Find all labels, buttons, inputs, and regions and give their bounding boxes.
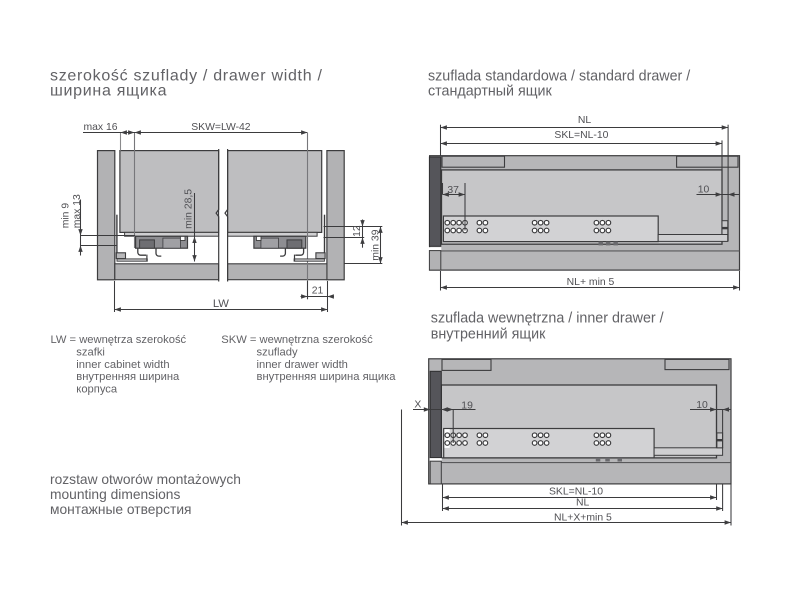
svg-text:12: 12 [352,225,363,237]
svg-text:стандартный ящик: стандартный ящик [428,84,552,100]
svg-text:max 16: max 16 [84,122,118,133]
svg-text:10: 10 [698,185,710,196]
svg-text:NL+X+min 5: NL+X+min 5 [554,513,612,524]
svg-text:внутренний ящик: внутренний ящик [431,326,546,342]
svg-text:корпуса: корпуса [76,384,118,396]
svg-text:NL: NL [576,498,590,509]
svg-text:19: 19 [461,401,473,412]
svg-text:min 39: min 39 [371,229,382,260]
svg-text:SKL=NL-10: SKL=NL-10 [554,130,608,141]
svg-text:mounting dimensions: mounting dimensions [50,487,180,502]
svg-text:SKW = wewnętrzna szerokość: SKW = wewnętrzna szerokość [221,334,373,346]
svg-text:21: 21 [312,285,324,296]
svg-text:NL+ min 5: NL+ min 5 [567,277,615,288]
svg-text:min 9: min 9 [60,203,71,229]
svg-text:szuflady: szuflady [257,346,298,358]
svg-text:inner drawer width: inner drawer width [257,359,348,371]
svg-text:10: 10 [696,400,708,411]
svg-text:SKW=LW-42: SKW=LW-42 [191,122,251,133]
svg-text:szuflada wewnętrzna / inner dr: szuflada wewnętrzna / inner drawer / [431,311,664,327]
svg-text:rozstaw otworów montażowych: rozstaw otworów montażowych [50,472,241,487]
svg-text:LW: LW [213,298,229,310]
svg-text:монтажные отверстия: монтажные отверстия [50,502,192,517]
svg-text:X: X [414,399,421,410]
svg-text:внутренняя ширина ящика: внутренняя ширина ящика [257,371,397,383]
svg-text:внутренняя ширина: внутренняя ширина [76,371,180,383]
svg-text:szafki: szafki [76,346,105,358]
svg-text:max 13: max 13 [72,194,83,228]
svg-text:ширина ящика: ширина ящика [50,83,167,100]
svg-text:SKL=NL-10: SKL=NL-10 [549,487,603,498]
svg-text:LW = wewnętrza szerokość: LW = wewnętrza szerokość [51,334,187,346]
svg-text:inner cabinet width: inner cabinet width [76,359,169,371]
svg-text:min 28,5: min 28,5 [184,189,195,229]
svg-text:szuflada standardowa / standar: szuflada standardowa / standard drawer / [428,69,690,85]
svg-text:NL: NL [578,115,592,126]
svg-text:37: 37 [447,185,459,196]
